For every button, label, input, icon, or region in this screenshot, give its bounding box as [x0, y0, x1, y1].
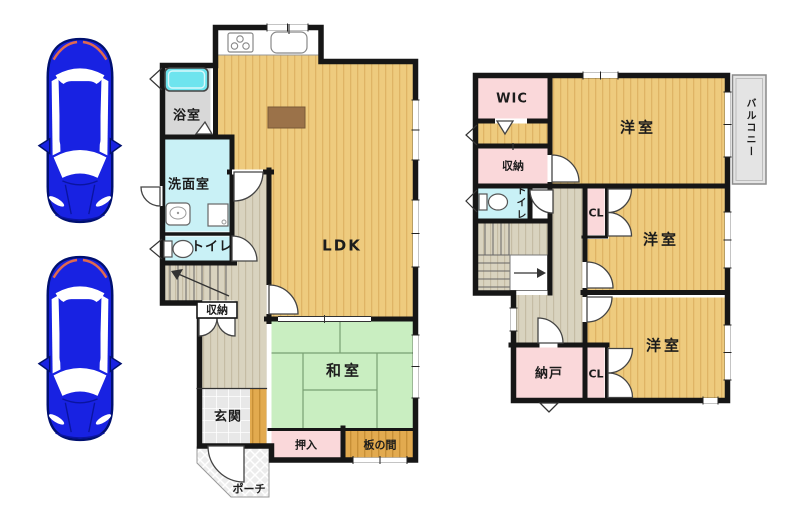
room-label-toilet-1f: トイレ	[191, 241, 233, 254]
room-label-bedroom1: 洋室	[620, 121, 656, 136]
room-label-storage-1f: 収納	[206, 305, 228, 316]
floorplan-page: 浴室 洗面室 トイレ LDK 収納 玄関 和室 押入 板の間 ポーチ WIC 収…	[0, 0, 800, 524]
dining-table	[268, 107, 305, 128]
washing-machine-icon	[208, 204, 228, 226]
room-label-closet1: CL	[588, 208, 603, 219]
room-label-bath: 浴室	[173, 110, 201, 123]
room-label-closet2: CL	[588, 369, 603, 380]
room-label-wic: WIC	[496, 93, 528, 106]
room-label-porch: ポーチ	[233, 484, 266, 495]
stove-icon	[228, 33, 253, 52]
door-arc	[530, 190, 553, 213]
hatch-marker	[540, 403, 558, 412]
toilet-icon	[479, 194, 508, 210]
fixtures-2f	[479, 194, 508, 210]
room-label-washitsu: 和室	[326, 364, 362, 379]
room-label-genkan: 玄関	[214, 411, 242, 424]
room-label-itanoma: 板の間	[364, 440, 397, 451]
car-icon	[39, 39, 121, 222]
room-label-washroom: 洗面室	[168, 179, 210, 192]
hall2-floor	[478, 124, 548, 144]
room-label-oshiire: 押入	[295, 440, 317, 451]
room-label-nando: 納戸	[535, 368, 563, 381]
floor2-plan	[466, 72, 766, 413]
floorplan-drawing	[0, 0, 800, 524]
room-label-ldk: LDK	[322, 239, 362, 254]
parking-area	[39, 39, 121, 440]
floor1-plan	[141, 24, 420, 498]
hall2-floor	[553, 189, 583, 296]
room-label-storage-2f: 収納	[502, 161, 524, 172]
room-label-bedroom2: 洋室	[643, 233, 679, 248]
shoe-cabinet-strip	[250, 389, 267, 445]
car-icon	[39, 257, 121, 440]
back-door-arc	[141, 187, 160, 206]
sliding-opening	[278, 315, 371, 323]
room-label-toilet-2f: トイレ	[514, 185, 524, 221]
washbasin-icon	[166, 203, 190, 225]
room-label-balcony: バルコニー	[744, 98, 754, 158]
toilet-icon	[164, 241, 193, 258]
room-label-bedroom3: 洋室	[646, 339, 682, 354]
hall-floor	[235, 175, 267, 389]
